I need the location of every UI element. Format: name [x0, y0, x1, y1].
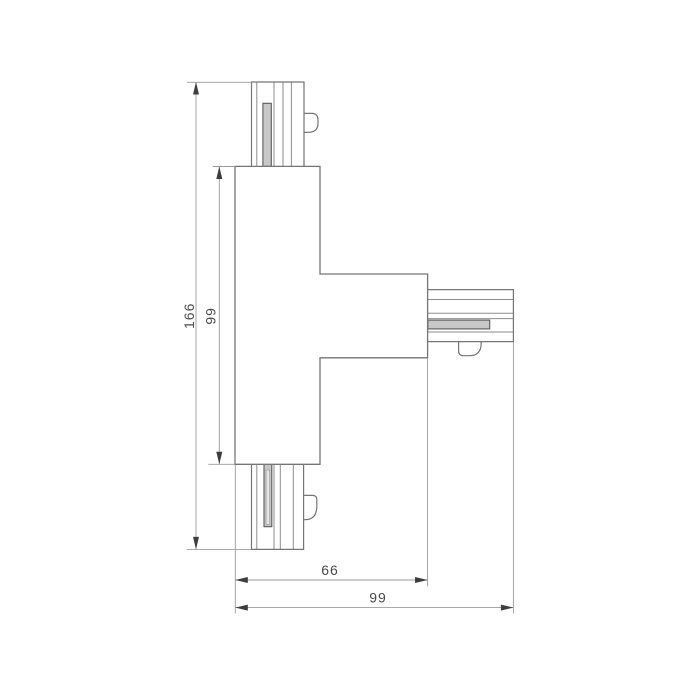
right-track-port: [428, 290, 514, 356]
arrow-icon: [235, 605, 248, 611]
arrow-icon: [501, 605, 514, 611]
top-track-port: [252, 82, 319, 166]
dim-label-width-total: 99: [369, 590, 387, 606]
top-port-outline: [252, 82, 305, 166]
arrow-icon: [235, 577, 248, 583]
right-port-outline: [428, 290, 514, 342]
technical-drawing-canvas: 166 99 66 99: [0, 0, 700, 700]
arrow-icon: [415, 577, 428, 583]
bottom-port-outline: [252, 464, 304, 549]
bottom-port-latch-tab: [304, 495, 317, 519]
arrow-icon: [193, 82, 199, 95]
arrow-icon: [193, 537, 199, 550]
top-port-latch-tab: [304, 113, 318, 132]
dim-label-height-body: 99: [203, 307, 219, 325]
arrow-icon: [216, 452, 222, 465]
bottom-track-port: [252, 464, 317, 549]
arrow-icon: [216, 167, 222, 180]
right-port-latch-tab: [459, 342, 482, 356]
dim-label-width-body: 66: [321, 562, 339, 578]
dim-label-height-total: 166: [181, 303, 197, 329]
connector-body-outline: [235, 166, 428, 464]
